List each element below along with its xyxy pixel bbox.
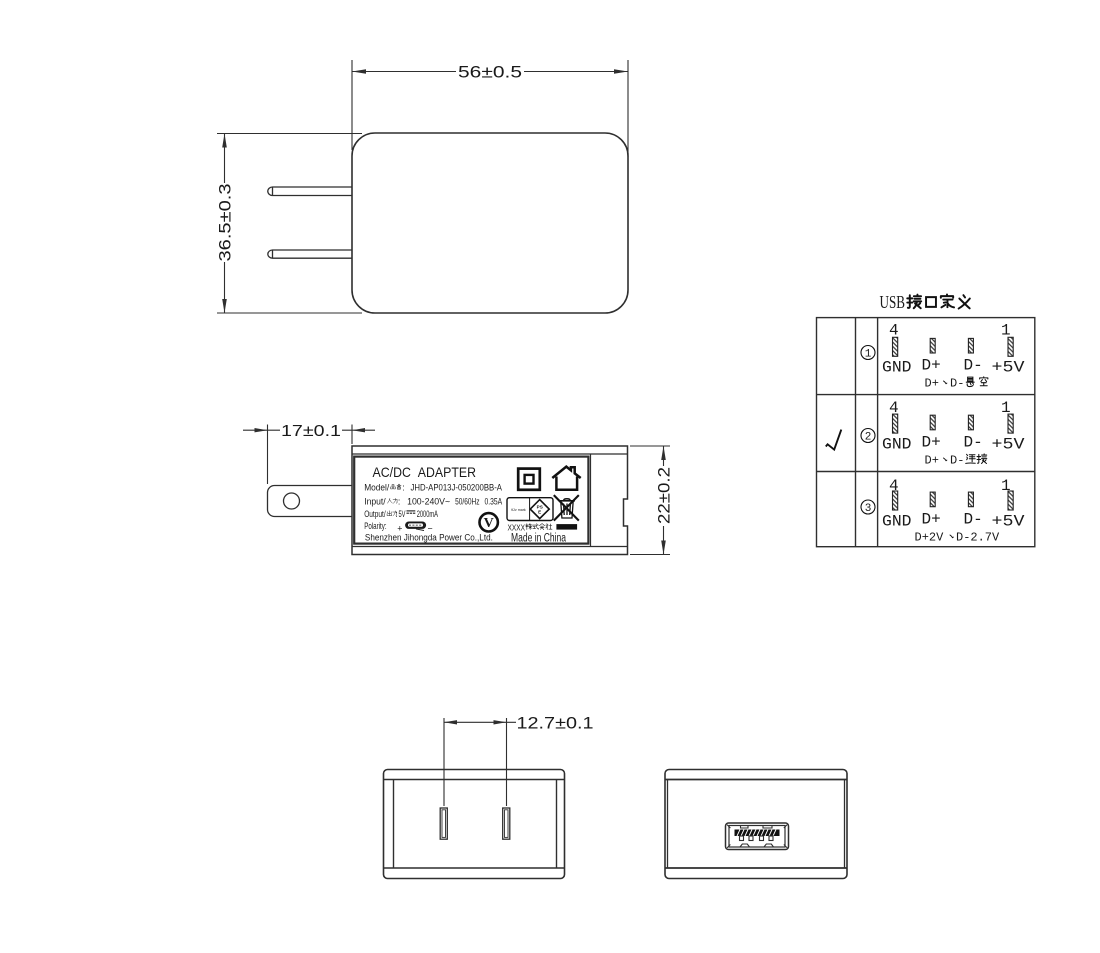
- svg-text:100-240V~: 100-240V~: [407, 497, 450, 507]
- svg-text:2000mA: 2000mA: [417, 509, 438, 519]
- svg-text:D-: D-: [964, 434, 983, 452]
- svg-text:JHD-AP013J-050200BB-A: JHD-AP013J-050200BB-A: [411, 483, 503, 493]
- svg-text:Polarity:: Polarity:: [364, 521, 386, 531]
- svg-text:XXXX: XXXX: [508, 522, 526, 532]
- svg-text:D-: D-: [950, 377, 964, 391]
- svg-text:50/60Hz: 50/60Hz: [455, 497, 480, 507]
- svg-text:D+: D+: [922, 434, 941, 452]
- svg-text:D-: D-: [964, 511, 983, 529]
- svg-text:1: 1: [865, 349, 872, 361]
- svg-text:2: 2: [865, 432, 872, 444]
- svg-text:36.5±0.3: 36.5±0.3: [216, 184, 235, 262]
- svg-text:D+: D+: [922, 511, 941, 529]
- svg-text::: :: [402, 483, 404, 493]
- svg-text:17±0.1: 17±0.1: [281, 423, 341, 440]
- svg-text:D-2.7V: D-2.7V: [956, 531, 1000, 545]
- svg-text:3: 3: [865, 503, 872, 515]
- svg-text:Model/: Model/: [364, 483, 390, 493]
- svg-text:D+2V: D+2V: [915, 531, 945, 545]
- svg-text::: :: [398, 497, 400, 507]
- svg-text:D+: D+: [925, 377, 939, 391]
- svg-text:E: E: [538, 510, 541, 515]
- svg-text:Shenzhen Jihongda Power Co.,Lt: Shenzhen Jihongda Power Co.,Ltd.: [365, 533, 493, 543]
- svg-text:56±0.5: 56±0.5: [458, 63, 522, 82]
- svg-text:+5V: +5V: [992, 436, 1025, 454]
- svg-text:+5V: +5V: [992, 359, 1025, 377]
- svg-text:Output/: Output/: [364, 509, 386, 519]
- svg-text:tÜv mark: tÜv mark: [511, 508, 526, 512]
- svg-text:Made in China: Made in China: [511, 533, 566, 545]
- svg-text::: :: [395, 509, 397, 519]
- svg-text:V: V: [484, 516, 494, 531]
- svg-text:USB: USB: [880, 292, 906, 312]
- svg-text:12.7±0.1: 12.7±0.1: [517, 715, 594, 733]
- svg-text:Input/: Input/: [364, 497, 386, 507]
- svg-text:AC/DC ADAPTER: AC/DC ADAPTER: [373, 464, 477, 480]
- svg-text:+5V: +5V: [992, 513, 1025, 531]
- svg-text:GND: GND: [882, 513, 912, 531]
- svg-text:D+: D+: [922, 357, 941, 375]
- svg-text:D-: D-: [964, 357, 983, 375]
- svg-text:GND: GND: [882, 359, 912, 377]
- svg-text:22±0.2: 22±0.2: [655, 467, 674, 524]
- svg-text:D+: D+: [925, 454, 939, 468]
- svg-text:D-: D-: [950, 454, 964, 468]
- svg-text:5V: 5V: [399, 509, 406, 519]
- svg-text:GND: GND: [882, 436, 912, 454]
- svg-text:0.35A: 0.35A: [485, 497, 503, 507]
